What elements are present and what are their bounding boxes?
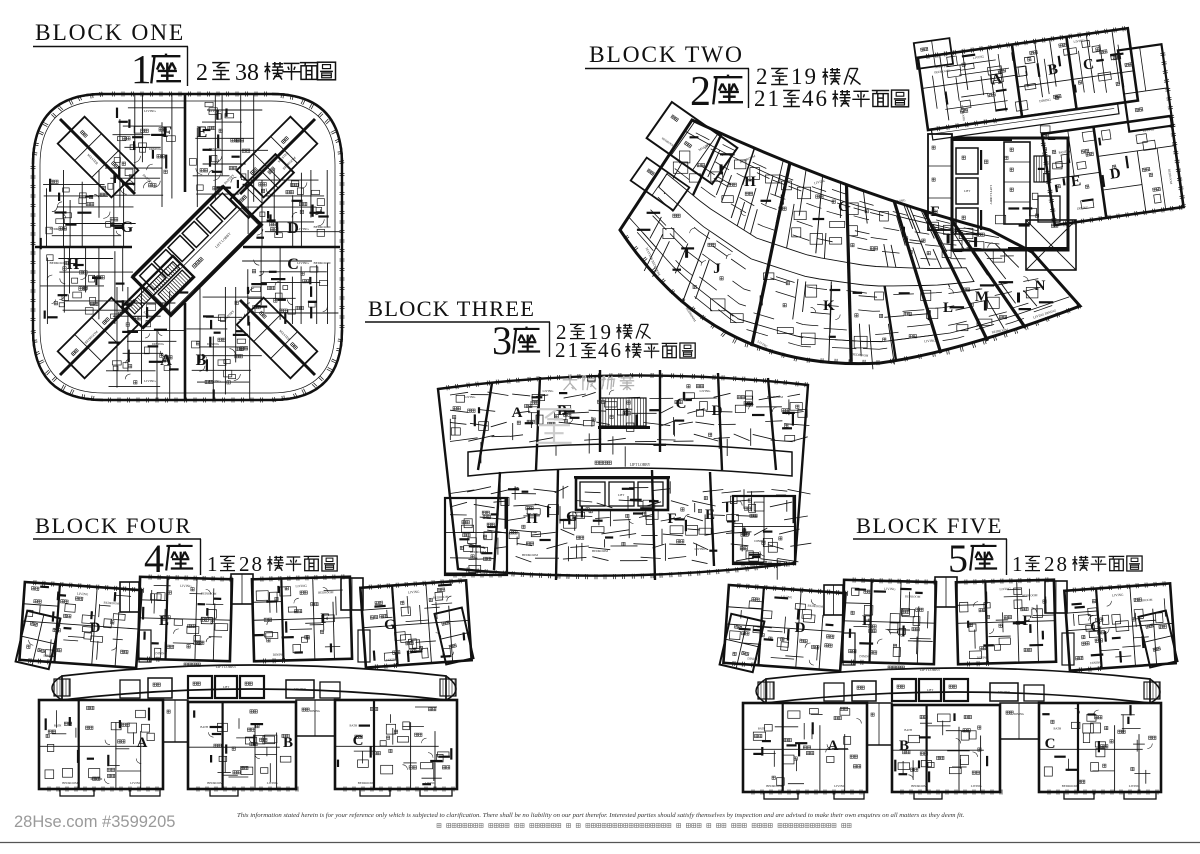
svg-text:J: J xyxy=(713,261,721,277)
svg-text:A: A xyxy=(137,735,148,751)
svg-text:N: N xyxy=(1035,278,1046,294)
svg-text:D: D xyxy=(90,620,101,636)
svg-text:BEDROOM: BEDROOM xyxy=(911,784,927,788)
svg-text:46: 46 xyxy=(598,338,623,362)
svg-text:BEDROOM: BEDROOM xyxy=(1022,593,1038,597)
svg-text:LIVING: LIVING xyxy=(999,587,1011,591)
svg-text:MASTER: MASTER xyxy=(472,545,486,549)
svg-text:KITCHEN: KITCHEN xyxy=(998,691,1010,694)
svg-text:LIVING: LIVING xyxy=(209,109,221,113)
svg-text:H: H xyxy=(67,256,80,273)
svg-text:LIFT: LIFT xyxy=(223,685,230,689)
svg-text:D: D xyxy=(712,403,723,419)
svg-text:DINING: DINING xyxy=(155,651,167,655)
svg-text:F: F xyxy=(162,124,172,141)
svg-text:DINING: DINING xyxy=(386,657,398,662)
svg-text:E: E xyxy=(862,613,872,629)
svg-text:K: K xyxy=(823,298,835,314)
svg-text:21: 21 xyxy=(754,86,781,111)
svg-text:LIFT: LIFT xyxy=(927,688,934,692)
svg-text:A: A xyxy=(512,405,523,421)
svg-text:G: G xyxy=(566,509,578,525)
svg-text:F: F xyxy=(1022,613,1031,629)
svg-text:This information stated herein: This information stated herein is for yo… xyxy=(237,812,965,819)
svg-text:C: C xyxy=(353,733,364,749)
svg-text:4: 4 xyxy=(144,536,164,581)
svg-text:BEDROOM: BEDROOM xyxy=(207,781,223,785)
svg-text:BLOCK ONE: BLOCK ONE xyxy=(35,20,185,46)
svg-text:DINING: DINING xyxy=(1014,712,1024,716)
svg-text:C: C xyxy=(1082,56,1095,73)
svg-text:1: 1 xyxy=(1012,552,1023,576)
svg-text:DINING: DINING xyxy=(149,147,162,151)
svg-text:BEDROOM: BEDROOM xyxy=(905,594,921,598)
svg-text:LIVING: LIVING xyxy=(695,547,707,551)
svg-text:DINING: DINING xyxy=(207,342,220,346)
svg-text:BEDROOM: BEDROOM xyxy=(50,227,67,231)
svg-text:LIVING: LIVING xyxy=(408,590,420,595)
svg-text:LIVING: LIVING xyxy=(700,389,712,393)
svg-text:46: 46 xyxy=(802,86,829,111)
svg-text:LIFT LOBBY: LIFT LOBBY xyxy=(216,665,237,669)
svg-text:DINING: DINING xyxy=(273,652,285,656)
svg-text:BATH: BATH xyxy=(350,724,358,728)
svg-text:F: F xyxy=(320,611,329,627)
svg-text:BEDROOM: BEDROOM xyxy=(358,781,374,785)
svg-text:LIFT LOBBY: LIFT LOBBY xyxy=(989,185,993,205)
svg-text:BEDROOM: BEDROOM xyxy=(470,550,486,554)
svg-text:LIVING: LIVING xyxy=(130,781,142,785)
svg-text:LIVING: LIVING xyxy=(295,584,307,588)
svg-text:LIVING: LIVING xyxy=(1129,784,1141,788)
svg-text:LIVING: LIVING xyxy=(297,261,309,265)
svg-text:BLOCK FOUR: BLOCK FOUR xyxy=(35,513,192,538)
svg-text:BEDROOM: BEDROOM xyxy=(314,261,331,265)
svg-text:LIFT: LIFT xyxy=(618,493,625,497)
svg-text:BLOCK FIVE: BLOCK FIVE xyxy=(856,513,1003,538)
svg-text:LIVING: LIVING xyxy=(209,379,221,383)
svg-text:G: G xyxy=(838,199,850,215)
svg-text:LIVING: LIVING xyxy=(834,784,846,788)
svg-text:LIVING: LIVING xyxy=(77,592,89,597)
svg-text:G: G xyxy=(384,617,396,633)
svg-text:A: A xyxy=(828,738,839,754)
svg-text:BATH: BATH xyxy=(758,727,766,731)
svg-text:B: B xyxy=(557,403,567,419)
svg-text:LIVING: LIVING xyxy=(425,781,437,785)
svg-text:LIFT LOBBY: LIFT LOBBY xyxy=(630,463,651,467)
svg-text:DINING: DINING xyxy=(747,656,759,661)
svg-text:BEDROOM: BEDROOM xyxy=(318,590,334,594)
svg-text:DINING: DINING xyxy=(43,653,55,658)
svg-text:LIVING: LIVING xyxy=(144,379,156,383)
svg-text:F: F xyxy=(667,511,676,527)
svg-text:H: H xyxy=(526,511,538,527)
svg-text:G: G xyxy=(1090,619,1102,635)
svg-text:DINING: DINING xyxy=(209,147,222,151)
svg-text:LIVING: LIVING xyxy=(781,595,793,600)
svg-text:L: L xyxy=(943,300,953,316)
svg-text:DINING: DINING xyxy=(152,342,165,346)
svg-text:28Hse.com #3599205: 28Hse.com #3599205 xyxy=(14,813,175,831)
svg-text:1: 1 xyxy=(131,46,152,92)
svg-text:LIFT LOBBY: LIFT LOBBY xyxy=(920,668,941,672)
svg-text:BATH: BATH xyxy=(904,728,912,732)
svg-text:LIVING: LIVING xyxy=(971,784,983,788)
svg-text:BEDROOM: BEDROOM xyxy=(767,395,783,399)
svg-text:BEDROOM: BEDROOM xyxy=(314,225,331,229)
svg-text:E: E xyxy=(197,124,208,141)
svg-text:LIVING: LIVING xyxy=(543,389,555,393)
svg-text:G: G xyxy=(121,219,134,236)
svg-text:LIVING: LIVING xyxy=(884,587,896,591)
svg-text:BATH: BATH xyxy=(54,724,62,728)
svg-text:5: 5 xyxy=(948,536,968,581)
svg-text:21: 21 xyxy=(555,338,580,362)
svg-text:LIVING: LIVING xyxy=(180,584,192,588)
svg-text:DINING: DINING xyxy=(754,539,766,543)
svg-text:LIVING: LIVING xyxy=(465,395,477,399)
svg-text:1: 1 xyxy=(207,552,218,576)
svg-text:BEDROOM: BEDROOM xyxy=(522,553,538,557)
svg-text:M: M xyxy=(975,289,989,305)
svg-text:3: 3 xyxy=(492,318,512,363)
svg-text:C: C xyxy=(1045,736,1056,752)
svg-text:BEDROOM: BEDROOM xyxy=(201,591,217,595)
svg-text:DINING: DINING xyxy=(1090,660,1102,665)
svg-text:DINING: DINING xyxy=(310,709,320,713)
svg-text:KITCHEN: KITCHEN xyxy=(294,688,306,691)
svg-text:BEDROOM: BEDROOM xyxy=(50,261,67,265)
svg-text:BEDROOM: BEDROOM xyxy=(62,781,78,785)
svg-text:LIVING: LIVING xyxy=(924,339,936,344)
svg-text:28: 28 xyxy=(1044,552,1069,576)
svg-text:LIFT: LIFT xyxy=(964,189,971,193)
svg-text:BATH: BATH xyxy=(200,725,208,729)
svg-text:LIVING: LIVING xyxy=(144,109,156,113)
svg-text:C: C xyxy=(676,396,687,412)
svg-text:LIVING: LIVING xyxy=(297,227,309,231)
svg-text:E: E xyxy=(159,613,169,629)
svg-text:D: D xyxy=(795,620,806,636)
svg-text:LIVING: LIVING xyxy=(1112,593,1124,598)
svg-text:LIVING: LIVING xyxy=(267,781,279,785)
svg-text:DINING: DINING xyxy=(859,654,871,658)
svg-text:BATH: BATH xyxy=(1054,727,1062,731)
svg-text:2: 2 xyxy=(690,69,711,115)
svg-text:BEDROOM: BEDROOM xyxy=(592,549,608,553)
svg-text:B: B xyxy=(196,352,207,369)
svg-text:B: B xyxy=(899,738,909,754)
svg-text:2: 2 xyxy=(196,60,208,86)
svg-text:B: B xyxy=(283,735,293,751)
svg-text:BEDROOM: BEDROOM xyxy=(1062,784,1078,788)
svg-text:BEDROOM: BEDROOM xyxy=(766,784,782,788)
svg-text:28: 28 xyxy=(239,552,264,576)
svg-text:H: H xyxy=(744,174,756,190)
svg-text:BLOCK TWO: BLOCK TWO xyxy=(589,42,744,68)
svg-text:DINING: DINING xyxy=(977,655,989,659)
svg-text:E: E xyxy=(705,507,715,523)
svg-text:A: A xyxy=(160,352,172,369)
svg-text:38: 38 xyxy=(235,60,259,86)
